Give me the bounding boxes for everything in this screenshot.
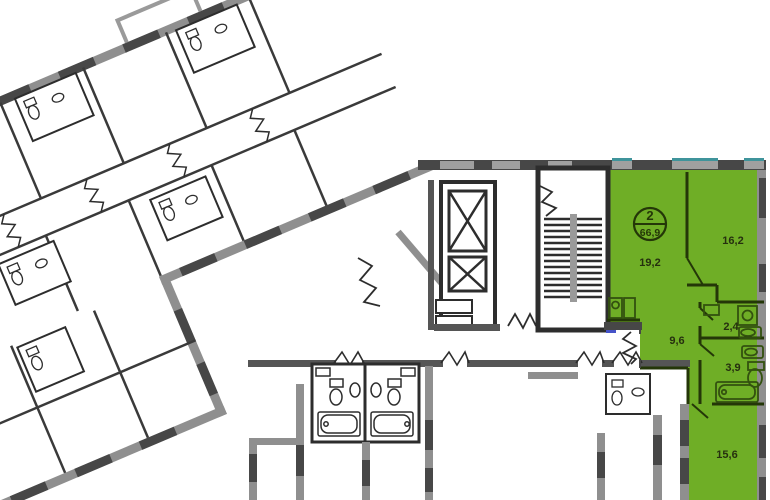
lobby-door-zigzag <box>508 314 536 328</box>
tilted-wing-bathrooms <box>0 5 345 392</box>
wing-connector <box>358 232 452 306</box>
floorplan-canvas: 2 66,9 19,2 16,2 2,4 9,6 3,9 15,6 <box>0 0 770 500</box>
floorplan-page: 2 66,9 19,2 16,2 2,4 9,6 3,9 15,6 <box>0 0 770 500</box>
lobby-wall <box>434 324 500 331</box>
room-area-label-wc: 2,4 <box>723 321 739 333</box>
small-bathroom <box>606 374 650 414</box>
room-area-label-bedroom2: 15,6 <box>716 449 737 461</box>
room-area-label-bath: 3,9 <box>725 362 740 374</box>
connector-door-zigzag <box>358 258 380 306</box>
stair-stringer <box>570 214 577 302</box>
room-area-label-living: 19,2 <box>639 257 660 269</box>
room-area-label-bedroom: 16,2 <box>722 235 743 247</box>
door-glazing-mark <box>606 330 616 333</box>
elevator-core <box>428 180 495 330</box>
core-left-wall <box>428 180 434 330</box>
stairwell <box>538 168 608 330</box>
badge-total-area: 66,9 <box>640 227 661 239</box>
green-kitchen-wall <box>604 322 642 330</box>
badge-rooms-count: 2 <box>646 208 653 223</box>
bathroom-block <box>312 364 419 500</box>
apartment-badge: 2 66,9 <box>634 208 666 240</box>
bottom-apartments <box>248 352 690 500</box>
room-area-label-hall: 9,6 <box>669 335 684 347</box>
